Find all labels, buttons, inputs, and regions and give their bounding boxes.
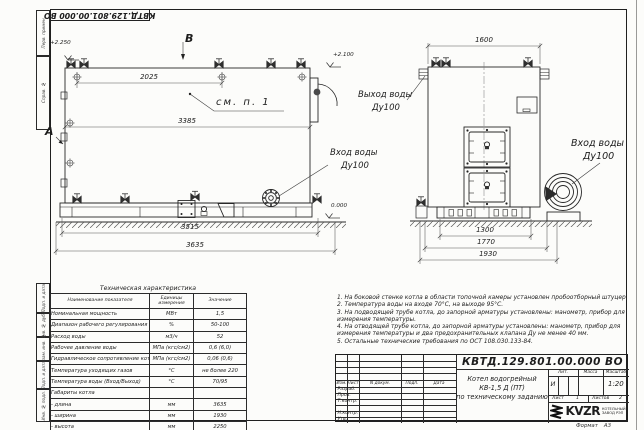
valve-icon	[442, 58, 450, 67]
dim-1600: 1600	[475, 37, 493, 44]
role-razrab: Разраб.	[338, 388, 356, 393]
upper-door	[464, 127, 510, 167]
inlet-label-side: Вход воды	[330, 149, 377, 158]
row-unit: мм	[150, 399, 194, 410]
role-nkontr: Н.контр.	[338, 412, 359, 417]
inlet-label-front: Вход воды	[571, 139, 624, 149]
sheet-label: Лист	[552, 397, 564, 402]
table-row: - ширинамм1930	[51, 410, 247, 421]
dim-1300: 1300	[476, 227, 494, 234]
lit-header: Лит.	[558, 371, 568, 375]
front-view	[416, 58, 582, 221]
level-mark-icon	[326, 214, 341, 219]
table-row: Диапазон рабочего регулирования%50-100	[51, 320, 247, 331]
row-name: Номинальная мощность	[51, 309, 150, 320]
row-name: Гидравлическое сопротивление котла	[51, 354, 150, 365]
table-row: Гидравлическое сопротивление котлаМПа (к…	[51, 354, 247, 365]
row-value: 1,5	[194, 309, 247, 320]
dim-1770: 1770	[477, 239, 495, 246]
rev-header-data: Дата	[433, 382, 444, 386]
valve-icon	[297, 59, 305, 68]
tech-header-units: Единицы измерения	[150, 294, 194, 309]
row-unit: °С	[150, 365, 194, 376]
dim-3635: 3635	[186, 242, 204, 249]
ground-hatch-right	[410, 221, 592, 227]
inlet-flange-side	[263, 190, 280, 207]
inlet-dn-label-side: Ду100	[341, 162, 369, 171]
row-value: 2250	[194, 421, 247, 430]
row-value: 0,6 (6,0)	[194, 342, 247, 353]
valve-icon	[524, 58, 532, 67]
format-note: ФорматА3	[576, 423, 611, 429]
drawing-sheet: Перв. примен. Справ. № Подп. и дата Инв.…	[0, 0, 644, 430]
row-value: 70/95	[194, 376, 247, 387]
product-name-line1: Котел водогрейный	[456, 375, 548, 383]
see-note-callout: см. п. 1	[216, 98, 271, 108]
sheet-value: 1	[576, 397, 579, 402]
scale-value: 1:20	[608, 381, 624, 388]
ground-hatch-left	[56, 222, 346, 228]
rev-header-izm: Изм.	[336, 382, 346, 386]
valve-icon	[313, 194, 321, 203]
note-line: 2. Температура воды на входе 70°С, на вы…	[337, 302, 627, 309]
row-unit: МПа (кгс/см2)	[150, 342, 194, 353]
mass-header: Масса	[584, 371, 598, 375]
valve-icon	[267, 59, 275, 68]
row-name: Расход воды	[51, 331, 150, 342]
level-mark-icon	[327, 63, 342, 68]
row-unit: МПа (кгс/см2)	[150, 354, 194, 365]
dim-3385: 3385	[178, 118, 196, 125]
role-tkontr: Т.контр.	[338, 400, 358, 405]
valve-icon	[215, 59, 223, 68]
tech-header-value: Значение	[194, 294, 247, 309]
row-unit: м3/ч	[150, 331, 194, 342]
row-name: - ширина	[51, 410, 150, 421]
row-unit: °С	[150, 376, 194, 387]
row-value: 0,06 (0,6)	[194, 354, 247, 365]
row-name: Температура воды (Вход/Выход)	[51, 376, 150, 387]
view-letter-b: В	[185, 33, 193, 44]
note-line: измерения температуры.	[337, 317, 627, 324]
lit-value: И	[551, 381, 556, 388]
product-name-line3: по техническому заданию	[456, 393, 548, 401]
title-block: Изм. Лист N докум. Подп. Дата Разраб. Пр…	[335, 354, 628, 422]
row-name: Рабочее давление воды	[51, 342, 150, 353]
row-unit: мм	[150, 421, 194, 430]
manufacturer-logo: KVZR КОТЕЛЬНЫЙ ЗАВОД РЭП	[548, 402, 628, 420]
row-unit: %	[150, 320, 194, 331]
row-name: - высота	[51, 421, 150, 430]
rev-header-list: Лист	[348, 382, 359, 386]
view-letter-a: А	[45, 126, 54, 137]
doc-number: КВТД.129.801.00.000 ВО	[456, 355, 629, 369]
row-unit: мм	[150, 410, 194, 421]
row-name: Диапазон рабочего регулирования	[51, 320, 150, 331]
fitting-marker-icon	[65, 118, 74, 127]
tech-table-header-row: Наименование показателя Единицы измерени…	[51, 294, 247, 309]
table-row: Рабочее давление водыМПа (кгс/см2)0,6 (6…	[51, 342, 247, 353]
row-name: - длина	[51, 399, 150, 410]
row-value: 52	[194, 331, 247, 342]
rev-header-podp: Подп.	[405, 382, 418, 386]
tech-header-name: Наименование показателя	[51, 294, 150, 309]
table-row: Габариты котла	[51, 388, 247, 399]
product-name-line2: КВ-1,5 Д (ПТ)	[456, 384, 548, 392]
valve-icon	[191, 191, 199, 200]
level-mark-icon	[65, 56, 80, 61]
note-line: 5. Остальные технические требования по О…	[337, 339, 627, 346]
valve-icon	[417, 197, 425, 206]
dim-1930: 1930	[479, 251, 497, 258]
row-name: Габариты котла	[51, 388, 150, 399]
logo-sub-line2: ЗАВОД РЭП	[602, 411, 626, 415]
tech-table: Наименование показателя Единицы измерени…	[50, 293, 247, 430]
scale-header: Масштаб	[606, 371, 626, 375]
row-unit	[150, 388, 194, 399]
row-value: 1930	[194, 410, 247, 421]
table-row: - высотамм2250	[51, 421, 247, 430]
kvzr-coil-icon	[550, 404, 563, 419]
rev-header-dokum: N докум.	[370, 382, 390, 386]
notes-block: 1. На боковой стенке котла в области топ…	[337, 295, 627, 346]
leader-lines	[56, 42, 600, 196]
fitting-marker-icon	[65, 158, 74, 167]
row-value: 50-100	[194, 320, 247, 331]
inlet-dn-label-front: Ду100	[583, 152, 614, 162]
tech-table-title: Техническая характеристика	[50, 285, 246, 292]
note-line: измерения температуры и два предохраните…	[337, 331, 627, 338]
format-label: Формат	[576, 423, 598, 429]
format-value: А3	[604, 423, 611, 429]
row-value: 3635	[194, 399, 247, 410]
fitting-marker-icon	[297, 72, 306, 81]
side-view	[60, 59, 337, 218]
row-unit: МВт	[150, 309, 194, 320]
elevation-marks	[65, 56, 342, 219]
table-row: Номинальная мощностьМВт1,5	[51, 309, 247, 320]
role-utv: Утв.	[338, 418, 348, 423]
inlet-flange-front	[545, 174, 582, 222]
outlet-dn-label: Ду100	[372, 104, 400, 113]
dim-2025: 2025	[140, 74, 158, 81]
table-row: Температура уходящих газов°Сне более 220	[51, 365, 247, 376]
sheets-value: 2	[619, 397, 622, 402]
logo-text: KVZR	[565, 404, 600, 418]
note-line: 4. На отводящей трубе котла, до запорной…	[337, 324, 627, 331]
row-value: не более 220	[194, 365, 247, 376]
elevation-zero: 0.000	[331, 204, 347, 210]
lower-door	[464, 168, 510, 207]
outlet-label: Выход воды	[358, 91, 412, 100]
note-line: 1. На боковой стенке котла в области топ…	[337, 295, 627, 302]
role-prov: Пров.	[338, 394, 351, 399]
note-line: 3. На подводящей трубе котла, до запорно…	[337, 310, 627, 317]
valve-icon	[432, 58, 440, 67]
row-name: Температура уходящих газов	[51, 365, 150, 376]
table-row: - длинамм3635	[51, 399, 247, 410]
table-row: Расход водым3/ч52	[51, 331, 247, 342]
elevation-top-right: +2.100	[333, 53, 354, 59]
table-row: Температура воды (Вход/Выход)°С70/95	[51, 376, 247, 387]
valve-icon	[121, 194, 129, 203]
row-value	[194, 388, 247, 399]
valve-icon	[80, 59, 88, 68]
dim-3515: 3515	[181, 224, 199, 231]
elevation-top-left: +2.250	[50, 41, 71, 47]
valve-icon	[73, 194, 81, 203]
sheets-label: Листов	[592, 397, 609, 402]
